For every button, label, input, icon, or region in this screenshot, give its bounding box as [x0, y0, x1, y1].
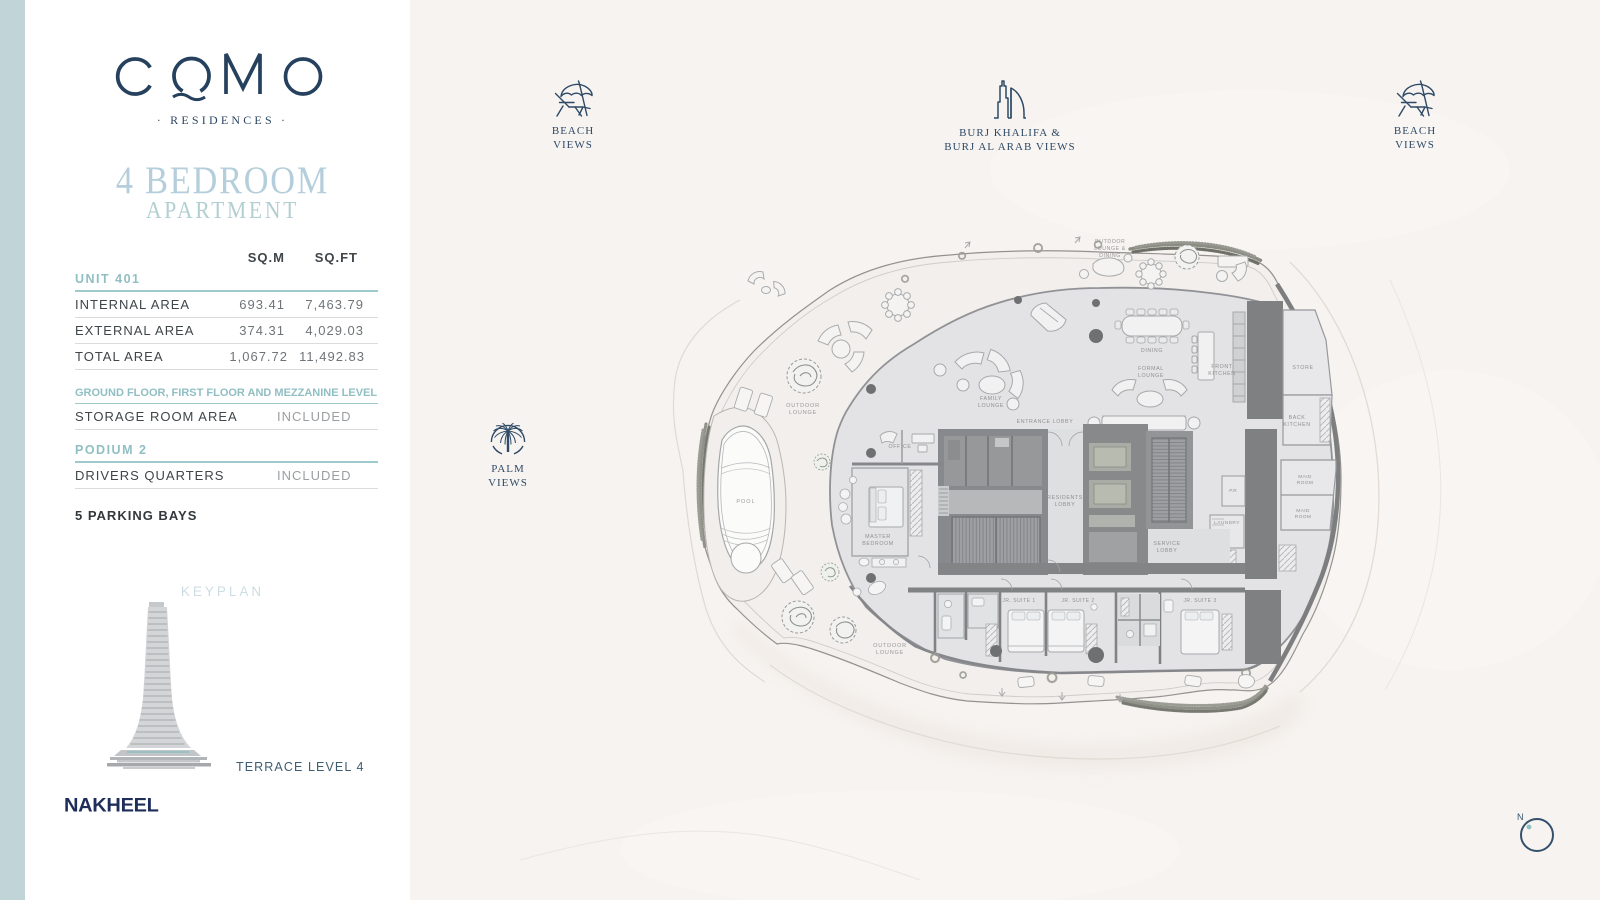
- svg-text:LOUNGE: LOUNGE: [876, 650, 904, 656]
- svg-text:FAMILY: FAMILY: [980, 396, 1002, 402]
- svg-text:OFFICE: OFFICE: [888, 444, 911, 450]
- svg-text:ENTRANCE LOBBY: ENTRANCE LOBBY: [1017, 419, 1074, 425]
- svg-text:MAID: MAID: [1296, 508, 1310, 514]
- svg-text:BEDROOM: BEDROOM: [862, 541, 894, 547]
- svg-text:POOL: POOL: [736, 499, 755, 505]
- svg-text:LOBBY: LOBBY: [1157, 548, 1178, 554]
- svg-text:JR. SUITE 2: JR. SUITE 2: [1061, 598, 1094, 604]
- svg-text:JR. SUITE 3: JR. SUITE 3: [1183, 598, 1216, 604]
- svg-text:SERVICE: SERVICE: [1153, 541, 1180, 547]
- svg-text:MASTER: MASTER: [865, 534, 891, 540]
- svg-text:P.R: P.R: [1229, 488, 1237, 494]
- svg-text:OUTDOOR: OUTDOOR: [873, 643, 907, 649]
- svg-text:LOBBY: LOBBY: [1055, 502, 1076, 508]
- svg-text:STORE: STORE: [1292, 365, 1313, 371]
- svg-text:MAID: MAID: [1298, 474, 1312, 480]
- svg-text:LOUNGE: LOUNGE: [978, 403, 1004, 409]
- svg-text:RESIDENTS: RESIDENTS: [1047, 495, 1083, 501]
- svg-text:N: N: [1517, 812, 1524, 822]
- svg-text:JR. SUITE 1: JR. SUITE 1: [1002, 598, 1035, 604]
- svg-text:DINING: DINING: [1141, 348, 1163, 354]
- svg-text:LOUNGE: LOUNGE: [1138, 373, 1164, 379]
- svg-text:KITCHEN: KITCHEN: [1208, 371, 1235, 377]
- svg-text:KITCHEN: KITCHEN: [1283, 422, 1310, 428]
- svg-text:LAUNDRY: LAUNDRY: [1214, 520, 1240, 526]
- svg-text:FRONT: FRONT: [1211, 364, 1232, 370]
- svg-text:LOUNGE: LOUNGE: [789, 410, 817, 416]
- svg-text:ROOM: ROOM: [1295, 514, 1312, 520]
- svg-text:FORMAL: FORMAL: [1138, 366, 1164, 372]
- svg-text:LOUNGE &: LOUNGE &: [1094, 246, 1126, 252]
- svg-text:OUTDOOR: OUTDOOR: [786, 403, 820, 409]
- svg-text:ROOM: ROOM: [1297, 480, 1314, 486]
- svg-text:BACK: BACK: [1289, 415, 1306, 421]
